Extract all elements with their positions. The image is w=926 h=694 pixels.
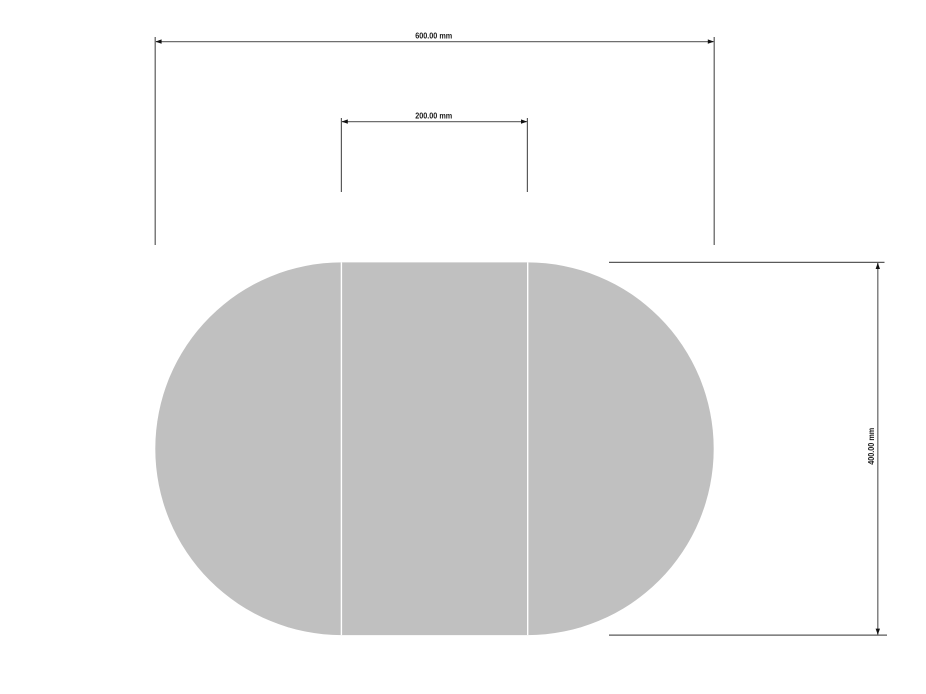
svg-text:400.00 mm: 400.00 mm — [866, 428, 876, 465]
svg-text:600.00 mm: 600.00 mm — [415, 30, 452, 40]
svg-text:200.00 mm: 200.00 mm — [415, 110, 452, 120]
